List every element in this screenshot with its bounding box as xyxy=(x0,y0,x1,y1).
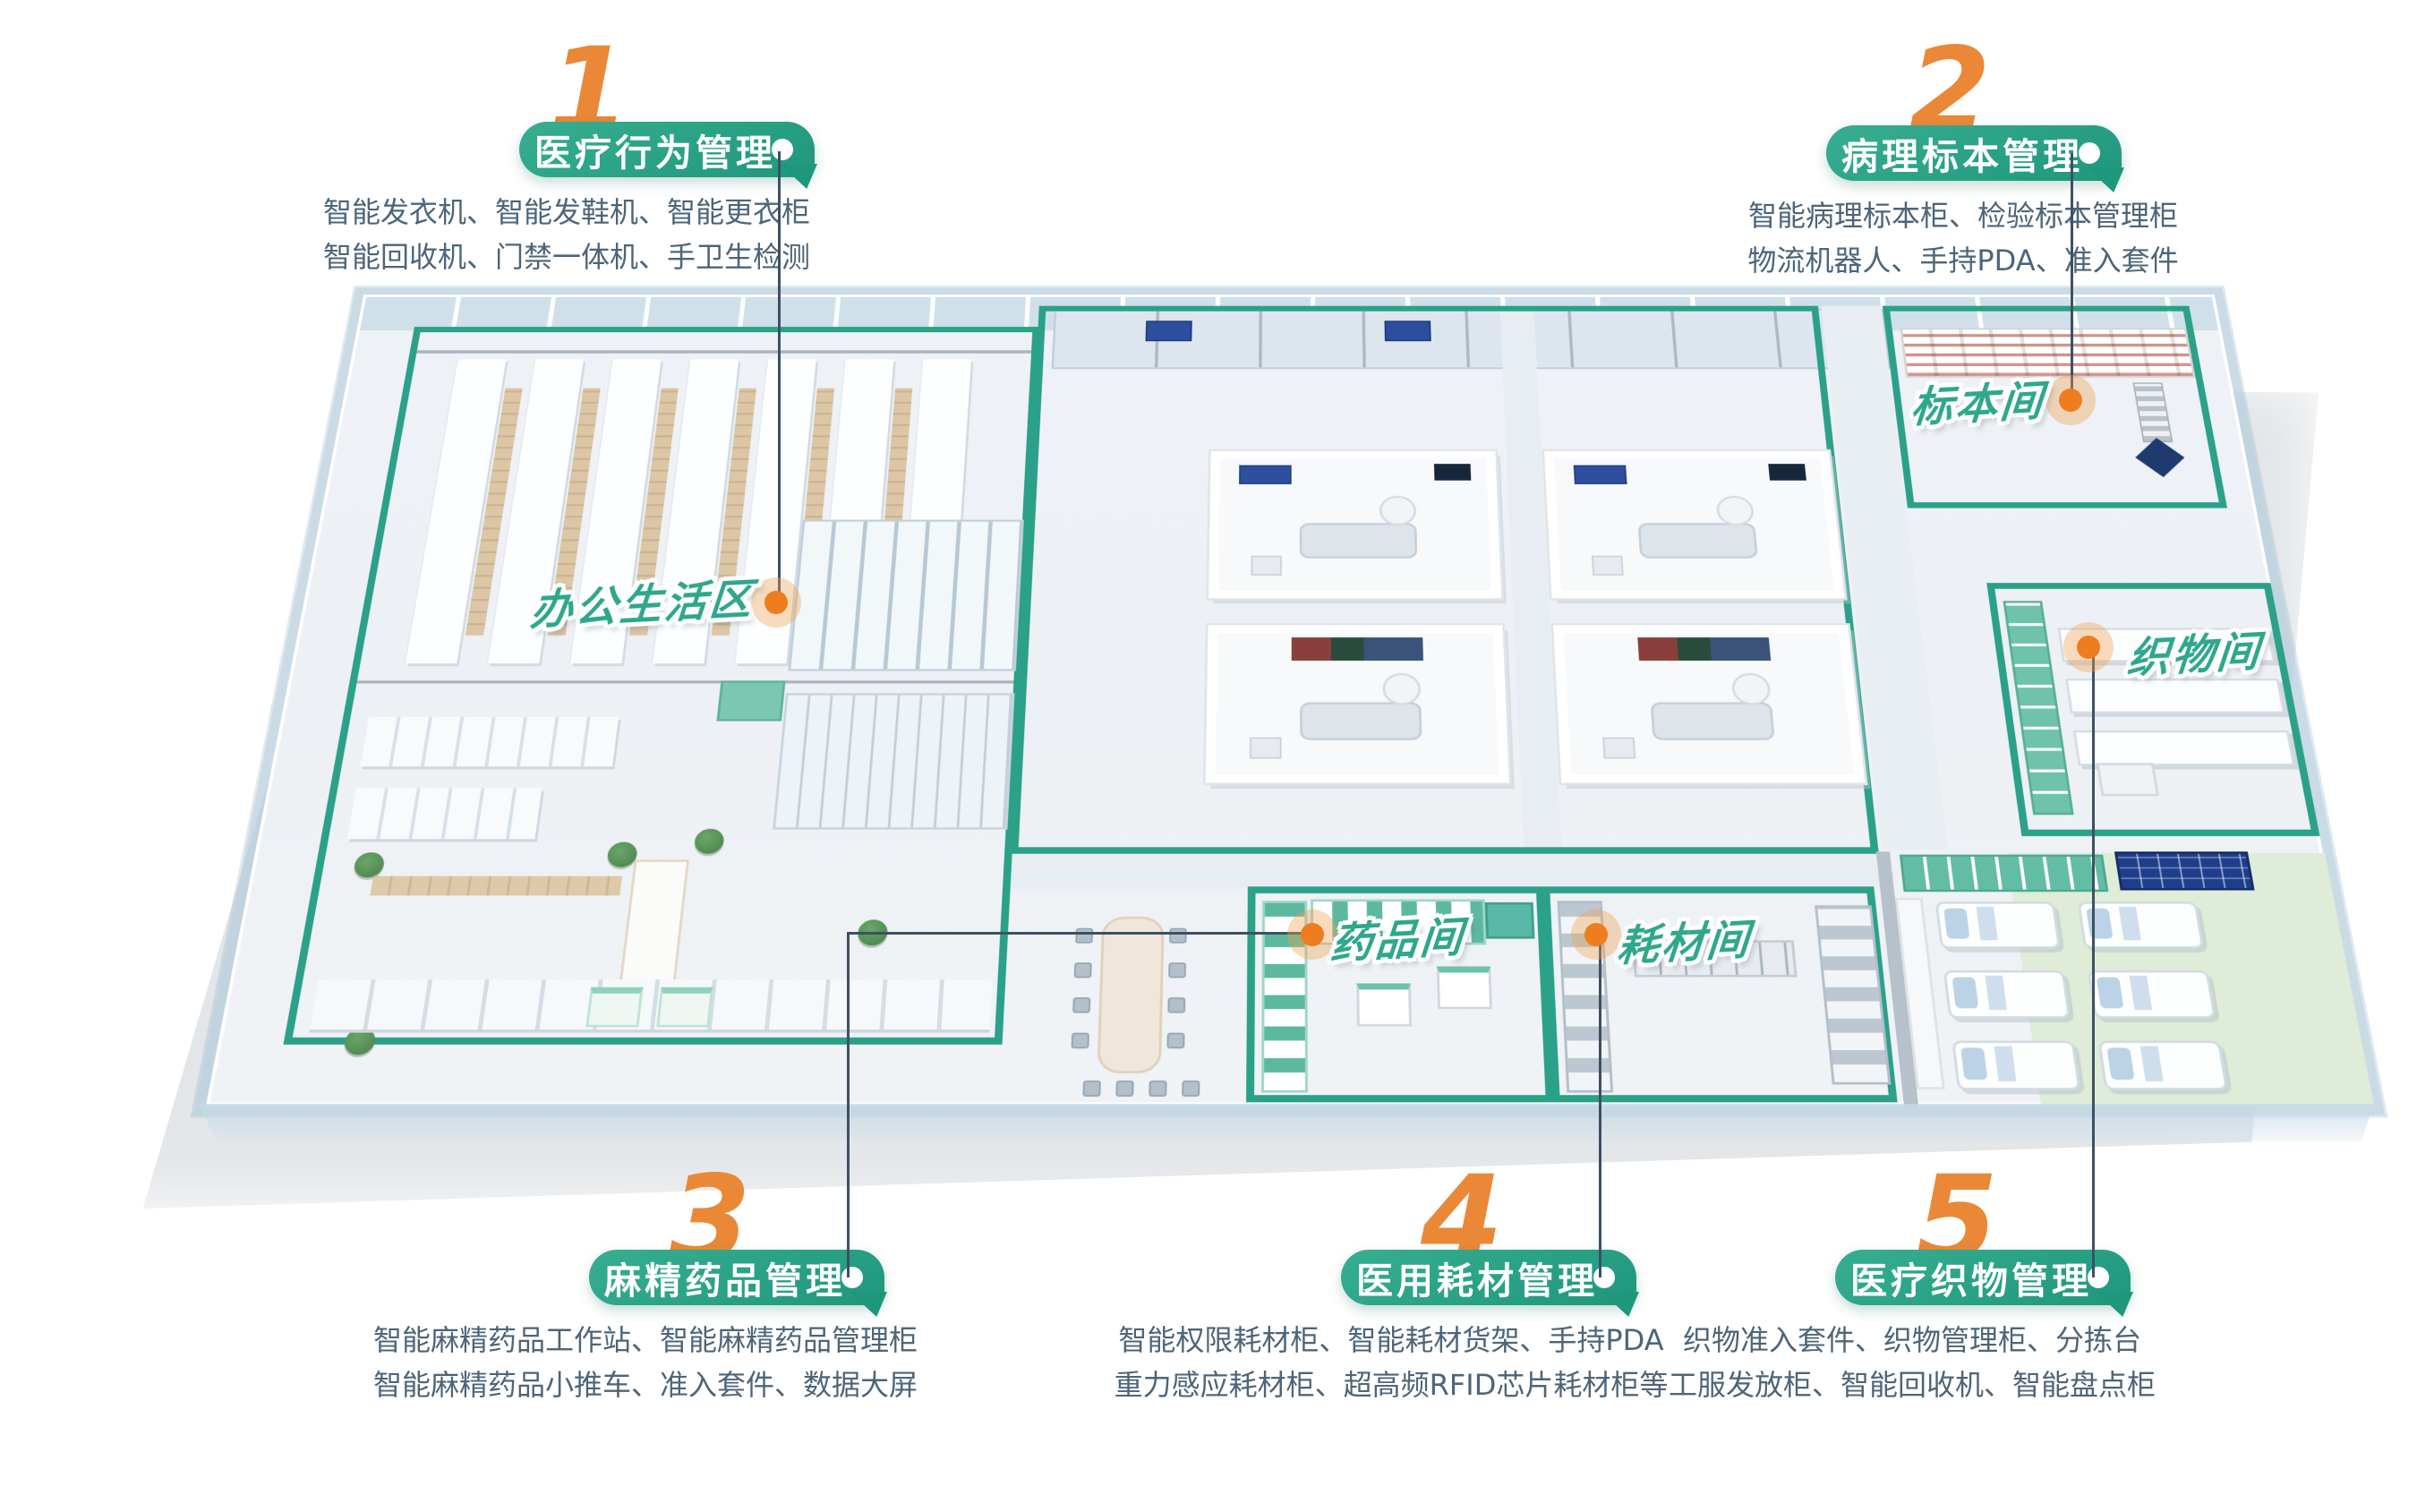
operating-table xyxy=(1300,702,1422,739)
recycle-machine xyxy=(656,987,713,1028)
ward-info-screen xyxy=(2114,851,2255,890)
work-table xyxy=(2097,763,2159,796)
chair xyxy=(1149,1081,1166,1097)
surgical-light xyxy=(1382,673,1421,705)
operating-table xyxy=(1300,523,1418,559)
hospital-bed xyxy=(2097,1040,2228,1089)
operating-room xyxy=(1206,625,1509,782)
surgical-light xyxy=(1730,673,1772,705)
chair xyxy=(1075,928,1093,944)
or-wall-display xyxy=(1637,637,1771,661)
plant xyxy=(343,1028,378,1055)
callout-1-dot xyxy=(772,139,793,160)
room-label-consumables: 耗材间 xyxy=(1615,904,1755,973)
zone-office-living xyxy=(283,327,1039,1045)
blanket xyxy=(2140,1046,2164,1081)
callout-1-desc-line2: 智能回收机、门禁一体机、手卫生检测 xyxy=(128,235,1005,279)
surgical-light xyxy=(1715,496,1755,525)
chair xyxy=(1072,997,1090,1012)
chair xyxy=(1168,962,1186,978)
callout-5-title: 医疗织物管理 xyxy=(1850,1251,2115,1304)
operating-table xyxy=(1650,702,1774,739)
callout-1-title: 医疗行为管理 xyxy=(534,123,799,176)
or-monitor xyxy=(1768,464,1806,481)
agv-robot xyxy=(2135,438,2184,477)
room-label-office: 办公生活区 xyxy=(528,564,757,637)
callout-2-title: 病理标本管理 xyxy=(1841,126,2106,180)
building-floor xyxy=(206,295,2372,1106)
cabinet-row xyxy=(360,717,619,766)
callout-2-desc-line1: 智能病理标本柜、检验标本管理柜 xyxy=(1525,193,2402,238)
bench xyxy=(370,876,622,896)
room-label-fabric: 织物间 xyxy=(2125,616,2265,685)
operating-room xyxy=(1544,451,1845,598)
zone-operating-rooms xyxy=(1011,306,1879,854)
fabric-shelf xyxy=(2065,679,2285,713)
pillow xyxy=(1943,909,1969,939)
connector-line-3h xyxy=(847,932,1311,935)
locker-stalls xyxy=(773,693,1014,829)
callout-4-dot xyxy=(1593,1267,1615,1288)
drug-workstation xyxy=(1356,983,1412,1026)
building-front-glass xyxy=(199,1104,2374,1141)
meeting-table xyxy=(1097,917,1165,1073)
plant xyxy=(353,852,386,877)
operating-room xyxy=(1208,451,1501,598)
surgical-light xyxy=(1379,496,1417,525)
callout-5-dot xyxy=(2088,1267,2109,1288)
callout-1-desc-line1: 智能发衣机、智能发鞋机、智能更衣柜 xyxy=(128,190,1005,235)
blanket xyxy=(2119,907,2141,940)
callout-2-desc-line2: 物流机器人、手持PDA、准入套件 xyxy=(1525,238,2402,283)
front-cabinet-row xyxy=(310,979,993,1029)
room-label-drug: 药品间 xyxy=(1328,901,1468,970)
equipment-cart xyxy=(1251,556,1281,576)
callout-2-dot xyxy=(2079,142,2100,164)
changing-stalls xyxy=(788,520,1023,671)
blanket xyxy=(1994,1046,2017,1081)
blanket xyxy=(2130,976,2153,1010)
pillow xyxy=(2097,978,2124,1009)
step-ladder xyxy=(2132,382,2173,442)
chair xyxy=(1115,1081,1133,1097)
operating-room xyxy=(1553,625,1865,782)
callout-5-desc-line2: 工服发放柜、智能回收机、智能盘点柜 xyxy=(1473,1363,2351,1407)
medicine-fridge xyxy=(1485,902,1535,939)
pillow xyxy=(1960,1047,1987,1080)
chair xyxy=(1169,928,1187,944)
blanket xyxy=(1977,907,1998,940)
wall xyxy=(416,350,1031,353)
hospital-bed xyxy=(2078,901,2205,949)
marker-office xyxy=(764,591,788,614)
chair xyxy=(1182,1081,1200,1097)
callout-3-dot xyxy=(841,1267,863,1288)
hospital-bed xyxy=(1935,901,2061,949)
callout-1-pill: 医疗行为管理 xyxy=(519,122,815,177)
room-label-specimen: 标本间 xyxy=(1909,365,2048,434)
chair xyxy=(1167,997,1185,1012)
callout-4-title: 医用耗材管理 xyxy=(1356,1251,1621,1304)
callout-2-pill: 病理标本管理 xyxy=(1826,125,2122,181)
connector-line-5 xyxy=(2092,648,2095,1277)
or-monitor xyxy=(1434,464,1471,481)
equipment-cart xyxy=(1602,738,1636,759)
plant xyxy=(694,829,725,854)
marker-drug xyxy=(1301,923,1324,946)
marker-fabric xyxy=(2077,636,2100,659)
connector-line-4 xyxy=(1599,935,1601,1277)
hospital-bed xyxy=(1952,1040,2080,1089)
callout-5-pill: 医疗织物管理 xyxy=(1835,1250,2131,1305)
connector-line-2 xyxy=(2071,153,2073,402)
teal-doorway xyxy=(716,680,785,721)
operating-table xyxy=(1637,523,1757,559)
chair xyxy=(1166,1033,1184,1049)
zone-fabric-room xyxy=(1986,583,2319,836)
hospital-bed xyxy=(1943,970,2071,1019)
pillow xyxy=(2086,909,2113,939)
fabric-shelf xyxy=(2073,730,2295,766)
recycle-machine xyxy=(585,987,643,1028)
or-screen xyxy=(1574,466,1627,484)
wall xyxy=(356,680,1013,683)
connector-line-1 xyxy=(778,151,781,604)
ward-lockers xyxy=(1900,855,2109,893)
blanket xyxy=(1985,976,2007,1010)
equipment-cart xyxy=(1250,738,1282,759)
callout-4-pill: 医用耗材管理 xyxy=(1341,1250,1636,1305)
callout-2-desc: 智能病理标本柜、检验标本管理柜 物流机器人、手持PDA、准入套件 xyxy=(1525,193,2402,283)
drug-workstation xyxy=(1437,966,1492,1009)
callout-5-desc: 织物准入套件、织物管理柜、分拣台 工服发放柜、智能回收机、智能盘点柜 xyxy=(1473,1318,2351,1407)
hospital-bed xyxy=(2088,970,2216,1019)
callout-3-pill: 麻精药品管理 xyxy=(589,1250,884,1305)
callout-1-desc: 智能发衣机、智能发鞋机、智能更衣柜 智能回收机、门禁一体机、手卫生检测 xyxy=(128,190,1005,279)
connector-line-3v xyxy=(847,934,850,1277)
chair xyxy=(1072,1033,1089,1049)
callout-3-title: 麻精药品管理 xyxy=(604,1251,869,1304)
or-wall-display xyxy=(1292,637,1423,661)
pillow xyxy=(1952,978,1979,1009)
cabinet-row xyxy=(347,788,542,839)
chair xyxy=(1082,1081,1101,1097)
chair xyxy=(1074,962,1092,978)
equipment-cart xyxy=(1592,556,1624,576)
or-screen xyxy=(1239,466,1292,484)
consumable-cabinets xyxy=(1815,905,1891,1084)
callout-5-desc-line1: 织物准入套件、织物管理柜、分拣台 xyxy=(1473,1318,2351,1363)
pillow xyxy=(2106,1047,2134,1080)
corridor xyxy=(1009,853,1895,889)
marker-consumables xyxy=(1584,923,1608,946)
marker-specimen xyxy=(2059,389,2082,412)
reception-desk xyxy=(619,859,689,989)
